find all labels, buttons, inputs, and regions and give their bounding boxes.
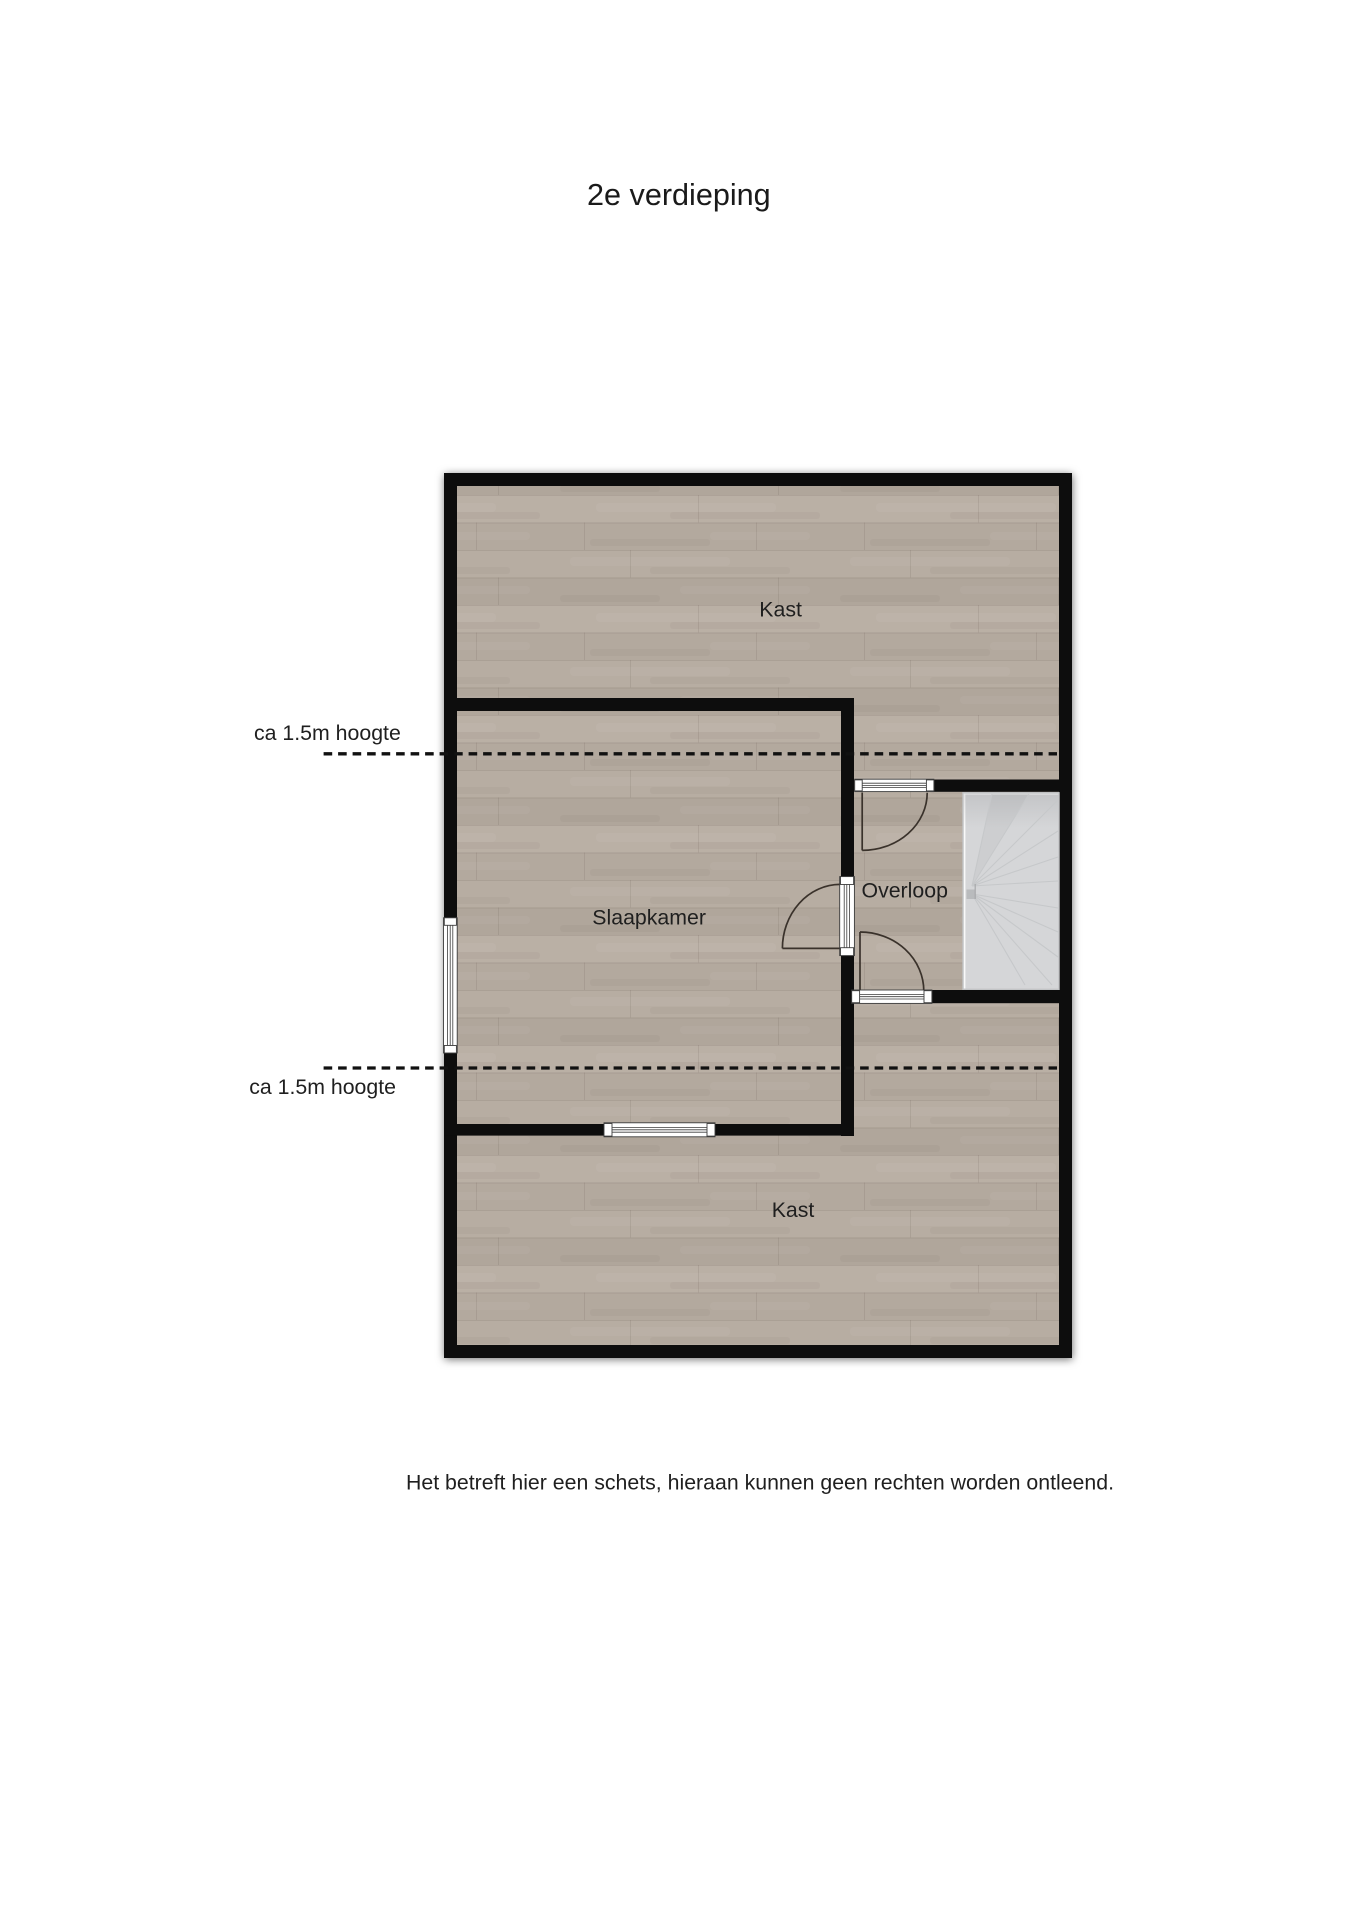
svg-text:Slaapkamer: Slaapkamer [592,905,706,929]
svg-text:Kast: Kast [772,1198,815,1222]
svg-text:2e verdieping: 2e verdieping [587,178,771,212]
svg-text:Kast: Kast [759,598,802,622]
svg-text:Het betreft hier een schets, h: Het betreft hier een schets, hieraan kun… [406,1471,1114,1495]
svg-text:ca 1.5m hoogte: ca 1.5m hoogte [254,721,401,745]
svg-text:ca 1.5m hoogte: ca 1.5m hoogte [249,1075,396,1099]
svg-text:Overloop: Overloop [862,879,948,903]
